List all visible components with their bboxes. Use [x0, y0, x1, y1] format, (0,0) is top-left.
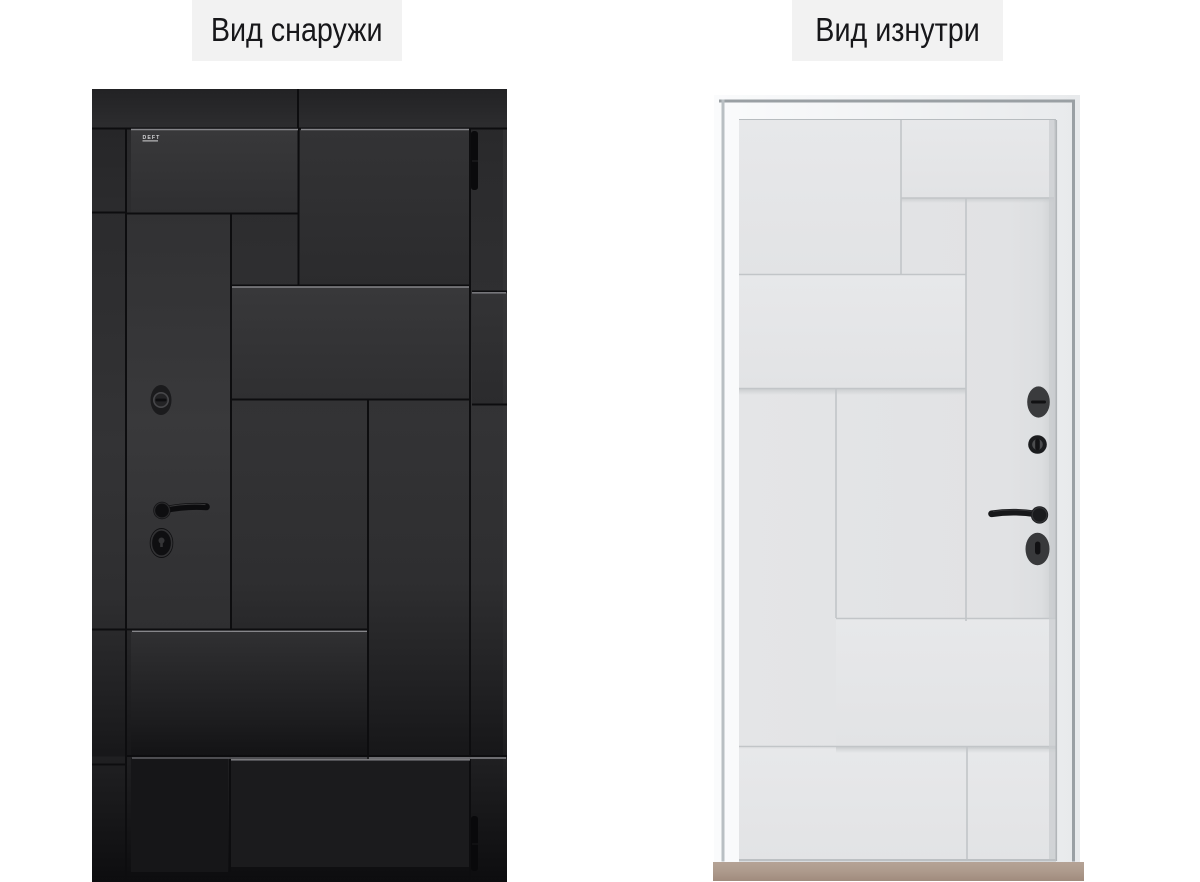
svg-text:DEFT: DEFT: [143, 135, 161, 141]
